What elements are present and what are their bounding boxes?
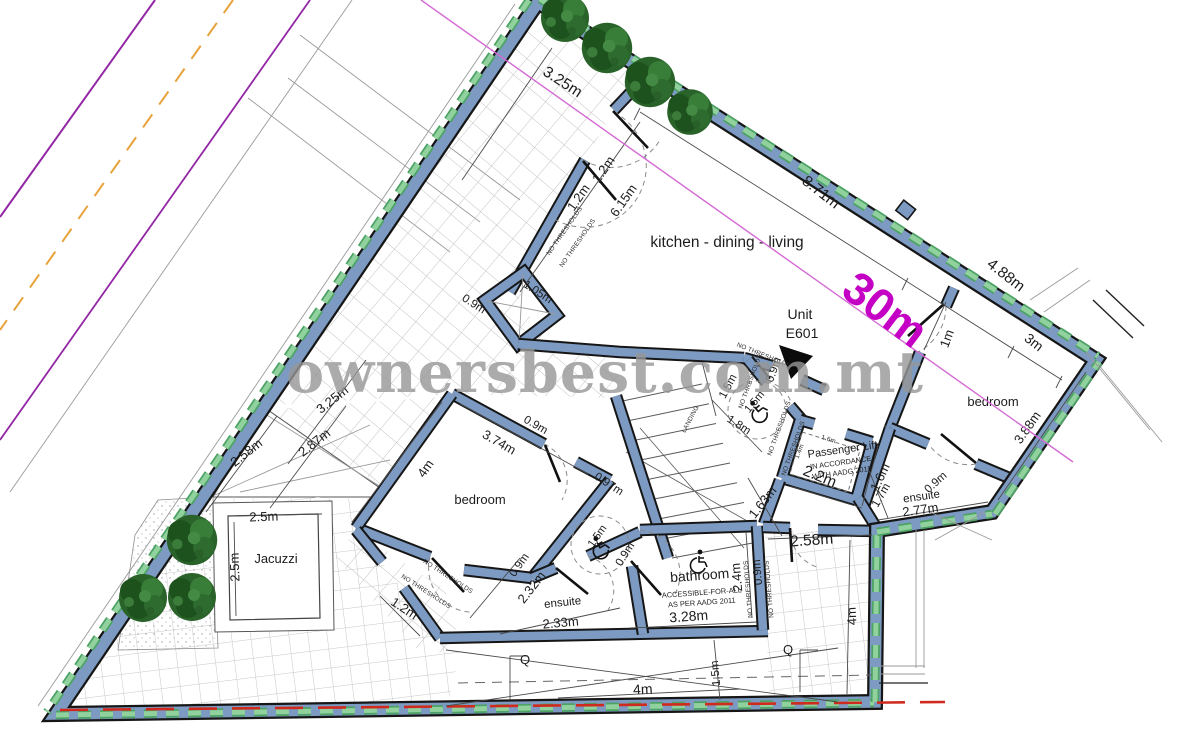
q-marker-1: Q [520,652,530,667]
dim-ensuite-left-width: 2.33m [542,613,579,631]
room-jacuzzi-label: Jacuzzi [254,551,297,566]
floor-plan-page: 3.25m 1.2m 1.2m 6.15m 8.71m 4.88m 3m 1m … [0,0,1200,731]
floor-plan-drawing: 3.25m 1.2m 1.2m 6.15m 8.71m 4.88m 3m 1m … [0,0,1200,731]
dim-terrace-width: 2.58m [790,531,834,551]
dim-yard-width: 4m [633,681,653,698]
room-bedroom-left-label: bedroom [454,492,505,507]
room-kitchen-label: kitchen - dining - living [650,234,803,251]
dim-yard-depth: 1.5m [709,660,723,687]
dim-terrace-depth: 4m [844,607,860,626]
dim-jacuzzi-d: 2.5m [227,552,243,581]
dim-bathroom-width: 3.28m [669,607,709,626]
dim-jacuzzi-w: 2.5m [249,509,278,525]
unit-label-1: Unit [788,306,813,322]
room-bedroom-right-label: bedroom [967,394,1018,409]
q-marker-2: Q [783,642,793,657]
watermark-text: ownersbest.com.mt [286,339,924,406]
